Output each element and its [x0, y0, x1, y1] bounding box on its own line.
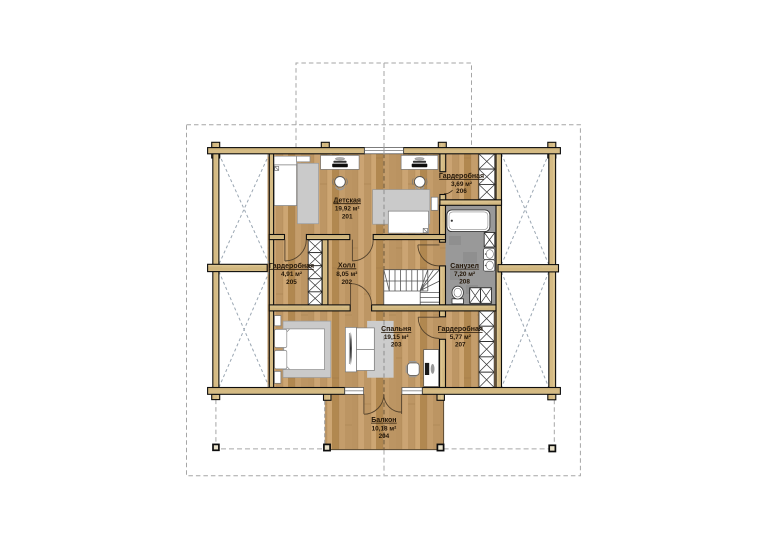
svg-text:201: 201 — [342, 214, 353, 221]
svg-text:207: 207 — [455, 342, 466, 349]
svg-text:204: 204 — [379, 433, 390, 440]
svg-text:203: 203 — [391, 342, 402, 349]
svg-text:5,77 м²: 5,77 м² — [450, 334, 471, 341]
svg-text:Гардеробная: Гардеробная — [439, 172, 484, 180]
svg-text:8,05 м²: 8,05 м² — [336, 271, 357, 278]
svg-text:10,18 м²: 10,18 м² — [372, 425, 397, 432]
svg-text:Гардеробная: Гардеробная — [269, 262, 314, 270]
svg-text:206: 206 — [456, 188, 467, 195]
svg-text:202: 202 — [341, 279, 352, 286]
svg-text:205: 205 — [286, 279, 297, 286]
svg-text:208: 208 — [459, 278, 470, 285]
svg-text:4,91 м²: 4,91 м² — [281, 271, 302, 278]
svg-text:19,92 м²: 19,92 м² — [335, 205, 360, 212]
svg-text:Гардеробная: Гардеробная — [438, 325, 483, 333]
svg-text:3,69 м²: 3,69 м² — [451, 181, 472, 188]
svg-text:7,20 м²: 7,20 м² — [454, 271, 475, 278]
svg-text:19,15 м²: 19,15 м² — [384, 334, 409, 341]
